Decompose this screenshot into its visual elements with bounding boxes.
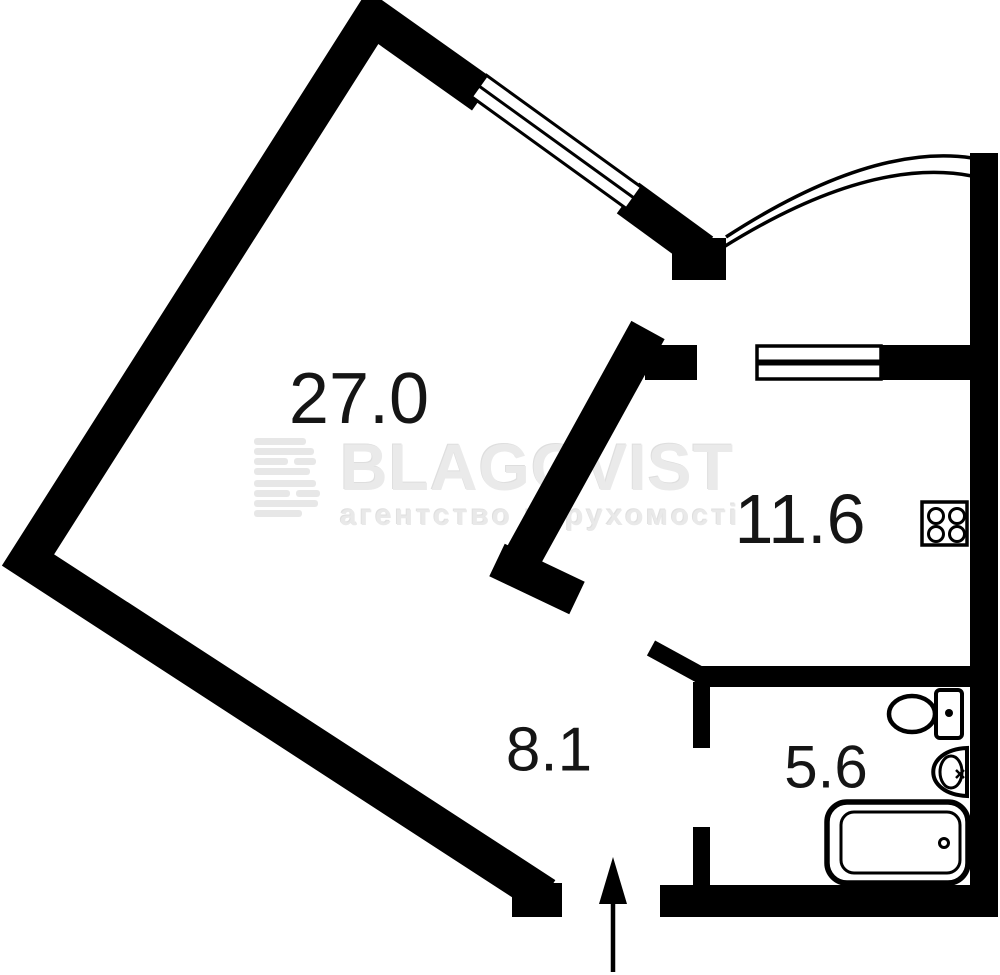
bathroom-left-wall-lower <box>693 827 710 887</box>
balcony-kitchen-wall <box>645 345 972 380</box>
entry-arrow-icon <box>599 857 627 972</box>
room-label-living-room: 27.0 <box>289 358 429 440</box>
outer-wall-right <box>970 153 998 917</box>
bathroom-left-wall-upper <box>693 682 710 748</box>
outer-wall-post-foot <box>672 238 726 280</box>
floor-plan-canvas: BLAGOVIST агентство нерухомості <box>0 0 1000 975</box>
bathroom-top-wall <box>695 666 972 687</box>
window-icon <box>757 346 881 379</box>
entry-left-jamb <box>512 883 562 917</box>
window-icon <box>471 75 641 208</box>
partition-living-room <box>497 330 648 598</box>
bathtub-icon <box>827 802 968 883</box>
balcony-curve-wall <box>722 156 972 248</box>
toilet-icon <box>889 690 962 738</box>
stove-icon <box>922 502 967 545</box>
outer-wall-left <box>28 17 545 896</box>
outer-wall-bottom <box>660 885 998 917</box>
sink-icon <box>933 748 967 796</box>
room-label-hallway: 8.1 <box>506 715 592 786</box>
wall-solid <box>881 345 972 380</box>
room-label-kitchen: 11.6 <box>734 479 865 559</box>
room-label-bathroom: 5.6 <box>784 733 867 802</box>
